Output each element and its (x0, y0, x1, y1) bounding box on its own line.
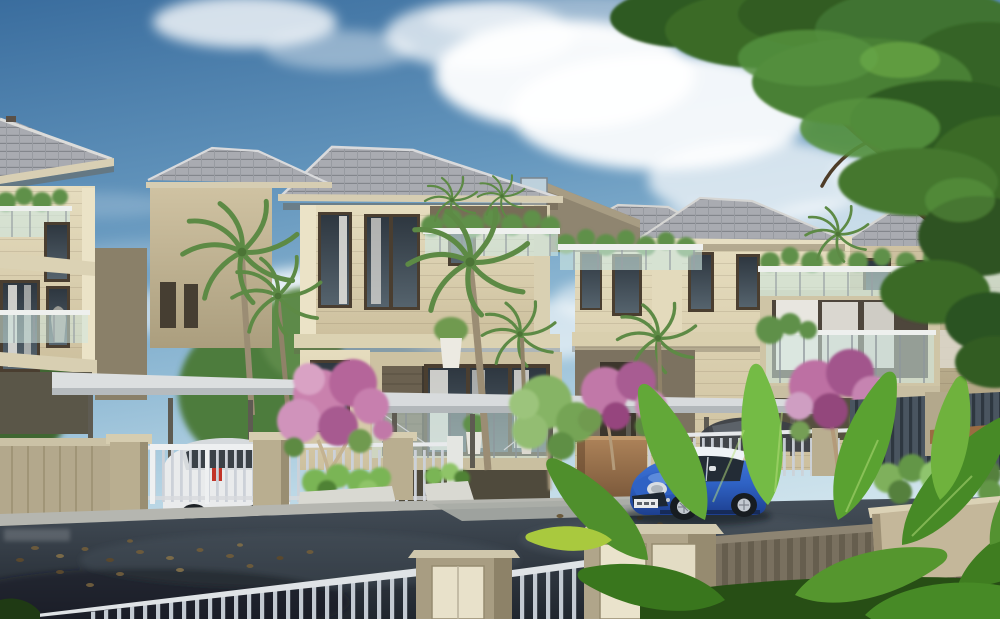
white-vase (440, 338, 462, 368)
mini-side-mirror (709, 466, 716, 471)
mini-wheel-rear (731, 493, 757, 517)
fg-pillar-1 (408, 550, 520, 619)
fence-pillar-a (106, 434, 152, 512)
rendered-photo: architectural-exterior-3d-render (0, 0, 1000, 619)
